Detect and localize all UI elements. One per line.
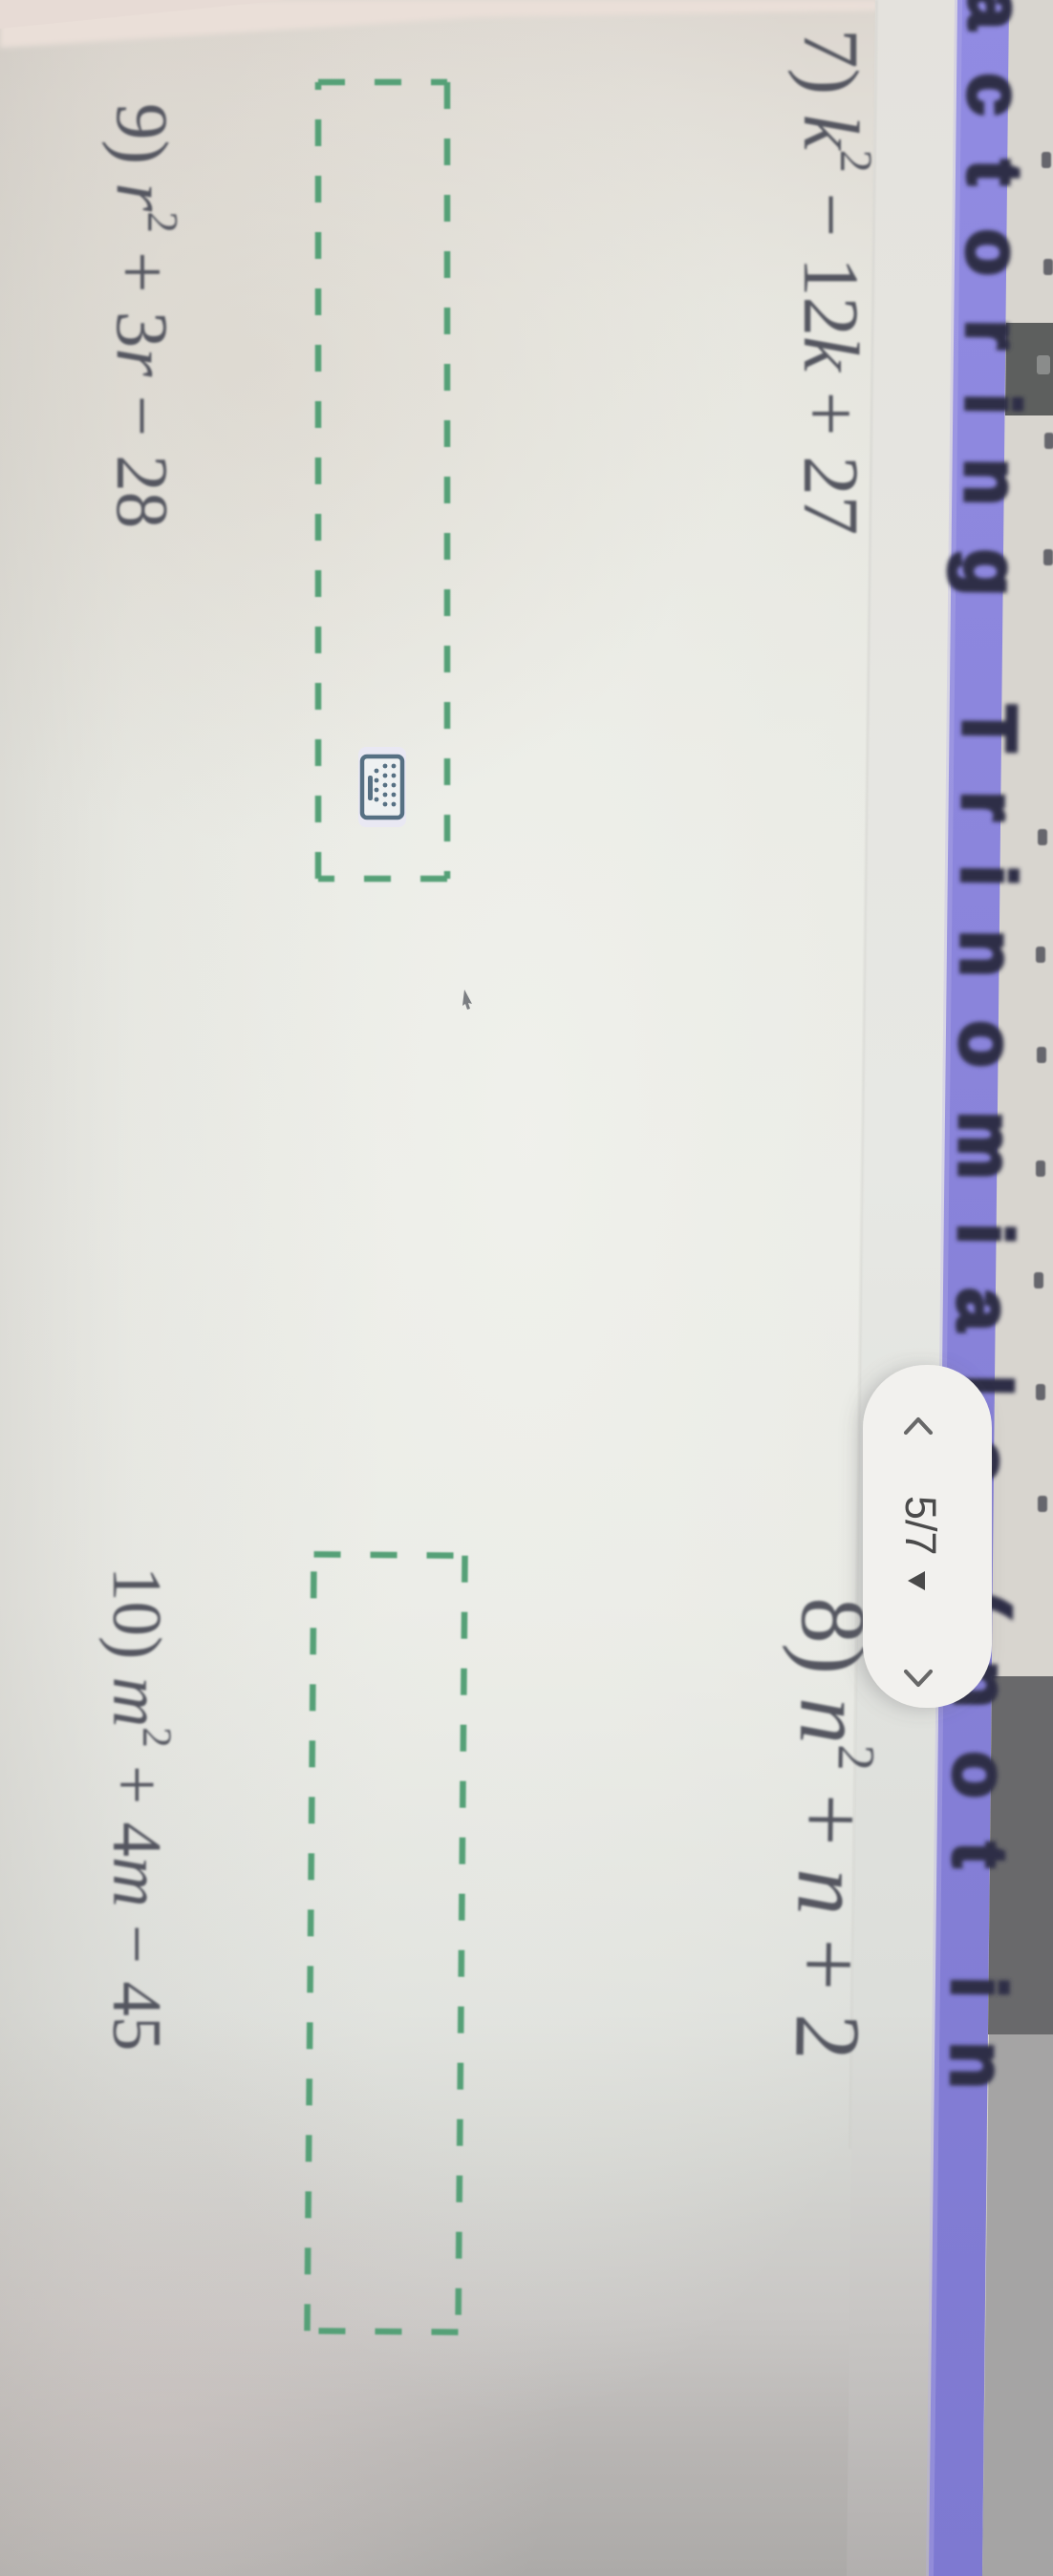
svg-text:5/7: 5/7 <box>896 1496 945 1556</box>
svg-text:9) r2 + 3r − 28: 9) r2 + 3r − 28 <box>101 103 186 528</box>
svg-text:10) m2 + 4m − 45: 10) m2 + 4m − 45 <box>98 1566 179 2051</box>
svg-text:7) k2 − 12k + 27: 7) k2 − 12k + 27 <box>787 29 881 535</box>
